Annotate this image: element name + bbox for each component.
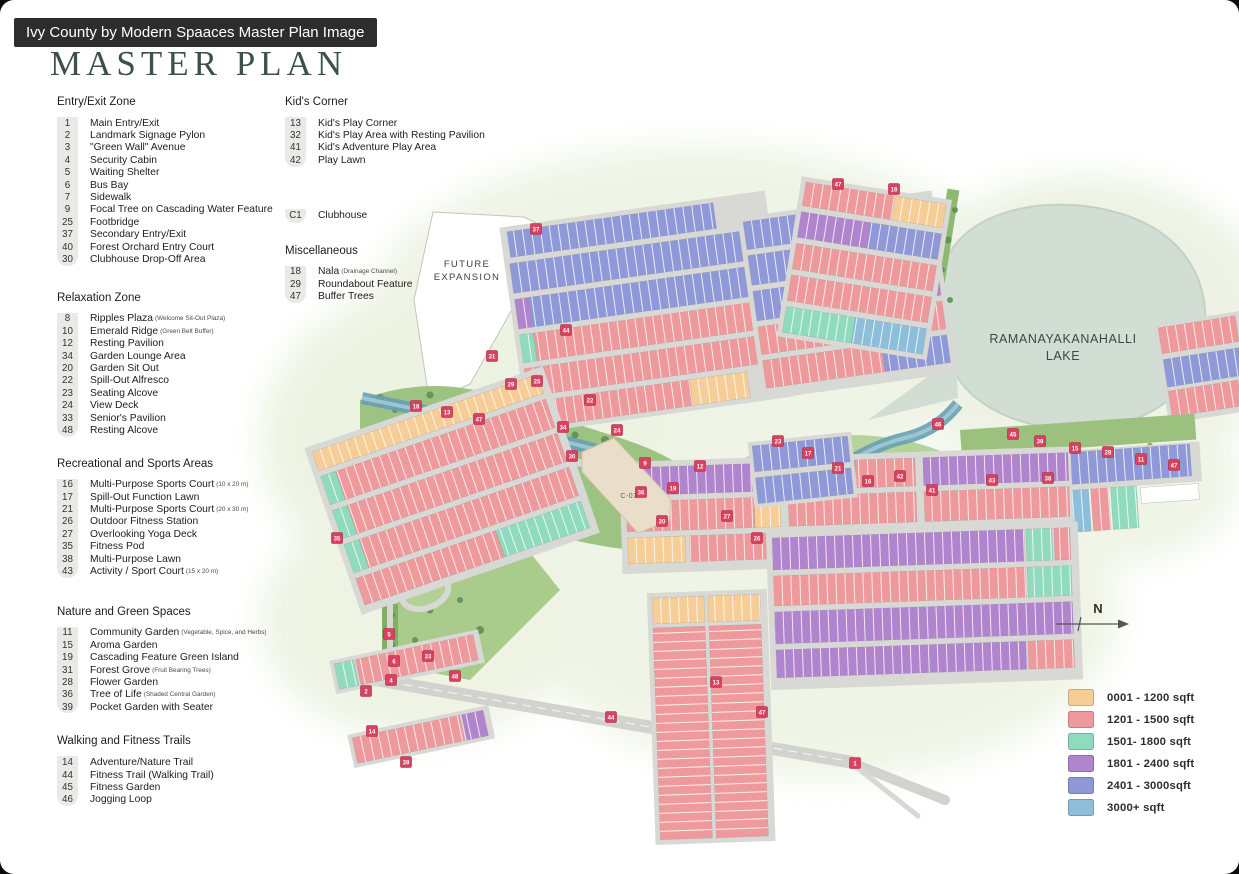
section-walking: Walking and Fitness Trails 14Adventure/N… <box>57 735 292 806</box>
svg-text:24: 24 <box>614 428 621 434</box>
svg-text:27: 27 <box>724 514 731 520</box>
legend-item-number: 8 <box>57 313 78 325</box>
legend-item-label: Overlooking Yoga Deck <box>90 528 197 540</box>
section-sports: Recreational and Sports Areas 16Multi-Pu… <box>57 458 292 578</box>
map-marker: 13 <box>711 677 722 688</box>
svg-text:38: 38 <box>1045 476 1052 482</box>
map-marker: 47 <box>833 179 844 190</box>
legend-item-number: 4 <box>57 154 78 166</box>
north-label: N <box>1093 601 1102 616</box>
legend-item: 23Seating Alcove <box>57 387 292 399</box>
legend-item-number: 29 <box>285 278 306 290</box>
plot-size-legend: 0001 - 1200 sqft 1201 - 1500 sqft 1501- … <box>1068 690 1194 815</box>
svg-text:18: 18 <box>891 187 898 193</box>
map-marker: 44 <box>606 712 617 723</box>
legend-item-label: Kid's Play Area with Resting Pavilion <box>318 129 485 141</box>
legend-list-walking: 14Adventure/Nature Trail44Fitness Trail … <box>57 756 292 806</box>
legend-item-label: Cascading Feature Green Island <box>90 652 239 664</box>
map-marker: 5 <box>384 629 395 640</box>
map-marker: 18 <box>411 401 422 412</box>
map-marker: 4 <box>386 675 397 686</box>
map-marker: 12 <box>695 461 706 472</box>
svg-text:39: 39 <box>403 760 410 766</box>
section-misc: Miscellaneous 18Nala(Drainage Channel)29… <box>285 245 485 303</box>
legend-item-label: Spill-Out Alfresco <box>90 375 169 387</box>
map-marker: 33 <box>423 651 434 662</box>
map-marker: 39 <box>1035 436 1046 447</box>
svg-text:44: 44 <box>563 328 570 334</box>
size-legend-row: 3000+ sqft <box>1068 800 1194 815</box>
legend-item-label: Focal Tree on Cascading Water Feature <box>90 204 273 216</box>
legend-item: 40Forest Orchard Entry Court <box>57 241 292 253</box>
legend-item-label: Forest Orchard Entry Court <box>90 241 214 253</box>
size-legend-label: 1501- 1800 sqft <box>1107 736 1191 748</box>
legend-item: 10Emerald Ridge(Green Belt Buffer) <box>57 325 292 337</box>
legend-item-number: 48 <box>57 424 78 436</box>
size-legend-label: 3000+ sqft <box>1107 802 1165 814</box>
legend-item-label: Landmark Signage Pylon <box>90 129 205 141</box>
legend-item-number: 27 <box>57 528 78 540</box>
svg-text:31: 31 <box>489 354 496 360</box>
legend-item-label: Pocket Garden with Seater <box>90 701 213 713</box>
svg-text:44: 44 <box>608 715 615 721</box>
svg-text:41: 41 <box>929 488 936 494</box>
legend-list-entry-exit: 1Main Entry/Exit2Landmark Signage Pylon3… <box>57 117 292 266</box>
map-marker: 30 <box>567 451 578 462</box>
legend-item-label: Ripples Plaza(Welcome Sit-Out Plaza) <box>90 313 225 325</box>
svg-text:14: 14 <box>369 729 376 735</box>
legend-item: 35Fitness Pod <box>57 541 292 553</box>
legend-item-label: Main Entry/Exit <box>90 117 159 129</box>
legend-item: 4Security Cabin <box>57 154 292 166</box>
map-marker: 1 <box>850 758 861 769</box>
legend-item-number: 30 <box>57 253 78 265</box>
clubhouse-building-label: C-01 <box>620 493 637 500</box>
legend-item-number: 38 <box>57 553 78 565</box>
legend-item: 22Spill-Out Alfresco <box>57 375 292 387</box>
legend-item: 8Ripples Plaza(Welcome Sit-Out Plaza) <box>57 313 292 325</box>
legend-item-number: 9 <box>57 204 78 216</box>
legend-item-number: 14 <box>57 756 78 768</box>
section-title: Miscellaneous <box>285 245 485 257</box>
legend-item: 48Resting Alcove <box>57 424 292 436</box>
legend-item: 38Multi-Purpose Lawn <box>57 553 292 565</box>
map-marker: 18 <box>889 184 900 195</box>
size-legend-label: 1801 - 2400 sqft <box>1107 758 1194 770</box>
svg-text:23: 23 <box>775 439 782 445</box>
legend-item-label: Fitness Trail (Walking Trail) <box>90 769 214 781</box>
legend-list-nature: 11Community Garden(Vegetable, Spice, and… <box>57 627 292 714</box>
legend-item-number: 41 <box>285 142 306 154</box>
map-marker: 35 <box>332 533 343 544</box>
svg-text:17: 17 <box>805 451 812 457</box>
legend-item-number: 24 <box>57 399 78 411</box>
svg-text:20: 20 <box>659 519 666 525</box>
legend-item-number: 42 <box>285 154 306 166</box>
legend-item: 7Sidewalk <box>57 191 292 203</box>
legend-item-label: Outdoor Fitness Station <box>90 516 198 528</box>
legend-item-number: 7 <box>57 191 78 203</box>
map-marker: 13 <box>442 407 453 418</box>
svg-text:25: 25 <box>534 379 541 385</box>
legend-item-label: Forest Grove(Fruit Bearing Trees) <box>90 664 211 676</box>
legend-item: 18Nala(Drainage Channel) <box>285 266 485 278</box>
size-legend-swatch <box>1068 777 1094 794</box>
legend-column-1: Entry/Exit Zone 1Main Entry/Exit2Landmar… <box>57 96 292 806</box>
legend-item-number: 32 <box>285 129 306 141</box>
map-marker: 47 <box>474 414 485 425</box>
map-marker: 38 <box>1043 473 1054 484</box>
map-marker: 31 <box>487 351 498 362</box>
legend-item-number: 17 <box>57 491 78 503</box>
legend-item-number: 6 <box>57 179 78 191</box>
svg-text:43: 43 <box>989 478 996 484</box>
legend-item-label: Nala(Drainage Channel) <box>318 266 397 278</box>
svg-text:12: 12 <box>697 464 704 470</box>
map-marker: 20 <box>657 516 668 527</box>
legend-item: 36Tree of Life(Shaded Central Garden) <box>57 689 292 701</box>
svg-text:37: 37 <box>533 227 540 233</box>
legend-item-number: 34 <box>57 350 78 362</box>
legend-item: 21Multi-Purpose Sports Court(20 x 30 m) <box>57 503 292 515</box>
section-title: Recreational and Sports Areas <box>57 458 292 470</box>
legend-item-label: Emerald Ridge(Green Belt Buffer) <box>90 325 214 337</box>
legend-item-label: Resting Alcove <box>90 424 158 436</box>
legend-item-label: Kid's Adventure Play Area <box>318 142 436 154</box>
legend-item: 25Footbridge <box>57 216 292 228</box>
legend-item: 33Senior's Pavilion <box>57 412 292 424</box>
legend-item-label: Adventure/Nature Trail <box>90 756 193 768</box>
size-legend-row: 1801 - 2400 sqft <box>1068 756 1194 771</box>
map-marker: 26 <box>752 533 763 544</box>
legend-item-number: 37 <box>57 229 78 241</box>
size-legend-row: 1501- 1800 sqft <box>1068 734 1194 749</box>
section-entry-exit: Entry/Exit Zone 1Main Entry/Exit2Landmar… <box>57 96 292 266</box>
svg-text:22: 22 <box>587 398 594 404</box>
map-marker: 47 <box>757 707 768 718</box>
legend-item-label: Activity / Sport Court(15 x 20 m) <box>90 565 218 577</box>
map-marker: 11 <box>1136 454 1147 465</box>
size-legend-label: 1201 - 1500 sqft <box>1107 714 1194 726</box>
svg-text:48: 48 <box>452 674 459 680</box>
legend-item-label: Flower Garden <box>90 676 158 688</box>
legend-item-number: 26 <box>57 516 78 528</box>
legend-item-label: Resting Pavilion <box>90 337 164 349</box>
legend-item-number: 36 <box>57 689 78 701</box>
legend-item-label: Aroma Garden <box>90 639 158 651</box>
legend-item-label: Fitness Garden <box>90 781 160 793</box>
map-marker: 17 <box>803 448 814 459</box>
legend-item: 17Spill-Out Function Lawn <box>57 491 292 503</box>
legend-item-label: Bus Bay <box>90 179 128 191</box>
master-plan-page: RAMANAYAKANAHALLI LAKE FUTURE EXPANSION <box>0 0 1239 874</box>
map-marker: 47 <box>1169 460 1180 471</box>
size-legend-swatch <box>1068 799 1094 816</box>
legend-item-number: 3 <box>57 142 78 154</box>
legend-item: 29Roundabout Feature <box>285 278 485 290</box>
legend-item-number: 10 <box>57 325 78 337</box>
page-title: MASTER PLAN <box>50 44 347 84</box>
legend-item-number: 20 <box>57 362 78 374</box>
legend-item: 9Focal Tree on Cascading Water Feature <box>57 204 292 216</box>
legend-item: 26Outdoor Fitness Station <box>57 516 292 528</box>
legend-item-number: 19 <box>57 652 78 664</box>
legend-item-number: C1 <box>285 209 306 223</box>
legend-item-number: 15 <box>57 639 78 651</box>
legend-item-label: Spill-Out Function Lawn <box>90 491 199 503</box>
section-kids: Kid's Corner 13Kid's Play Corner32Kid's … <box>285 96 485 167</box>
legend-item-label: Tree of Life(Shaded Central Garden) <box>90 689 215 701</box>
map-marker: 22 <box>585 395 596 406</box>
legend-item-number: 44 <box>57 769 78 781</box>
size-legend-row: 1201 - 1500 sqft <box>1068 712 1194 727</box>
legend-item: 27Overlooking Yoga Deck <box>57 528 292 540</box>
legend-item-number: 43 <box>57 565 78 577</box>
legend-item: 3"Green Wall" Avenue <box>57 142 292 154</box>
map-marker: 21 <box>833 463 844 474</box>
legend-item-label: Garden Lounge Area <box>90 350 186 362</box>
legend-column-2: Kid's Corner 13Kid's Play Corner32Kid's … <box>285 96 485 303</box>
map-marker: 39 <box>401 757 412 768</box>
legend-list-kids: 13Kid's Play Corner32Kid's Play Area wit… <box>285 117 485 167</box>
legend-item: 47Buffer Trees <box>285 290 485 302</box>
svg-text:13: 13 <box>713 680 720 686</box>
legend-item: 28Flower Garden <box>57 676 292 688</box>
svg-text:35: 35 <box>334 536 341 542</box>
legend-item: 32Kid's Play Area with Resting Pavilion <box>285 129 485 141</box>
map-marker: 42 <box>895 471 906 482</box>
size-legend-label: 2401 - 3000sqft <box>1107 780 1191 792</box>
legend-item-label: Secondary Entry/Exit <box>90 229 186 241</box>
legend-item-label: Multi-Purpose Sports Court(20 x 30 m) <box>90 503 249 515</box>
legend-item-label: Clubhouse <box>318 209 367 223</box>
legend-item: 5Waiting Shelter <box>57 167 292 179</box>
svg-text:26: 26 <box>754 536 761 542</box>
map-marker: 44 <box>561 325 572 336</box>
legend-item-label: Community Garden(Vegetable, Spice, and H… <box>90 627 267 639</box>
size-legend-row: 2401 - 3000sqft <box>1068 778 1194 793</box>
legend-item: 2Landmark Signage Pylon <box>57 129 292 141</box>
legend-item-label: Garden Sit Out <box>90 362 159 374</box>
legend-item-label: Play Lawn <box>318 154 366 166</box>
legend-item: 45Fitness Garden <box>57 781 292 793</box>
section-clubhouse: C1 Clubhouse <box>285 209 485 223</box>
legend-item-number: 13 <box>285 117 306 129</box>
legend-item-label: "Green Wall" Avenue <box>90 142 185 154</box>
section-title: Kid's Corner <box>285 96 485 108</box>
map-marker: 15 <box>1070 443 1081 454</box>
lake-label-line1: RAMANAYAKANAHALLI <box>989 332 1136 346</box>
section-title: Relaxation Zone <box>57 292 292 304</box>
legend-item: C1 Clubhouse <box>285 209 485 223</box>
legend-item-number: 18 <box>285 266 306 278</box>
legend-item: 14Adventure/Nature Trail <box>57 756 292 768</box>
legend-item-label: Senior's Pavilion <box>90 412 166 424</box>
legend-item-number: 45 <box>57 781 78 793</box>
section-title: Walking and Fitness Trails <box>57 735 292 747</box>
legend-list-misc: 18Nala(Drainage Channel)29Roundabout Fea… <box>285 266 485 303</box>
section-relaxation: Relaxation Zone 8Ripples Plaza(Welcome S… <box>57 292 292 437</box>
legend-item-label: Buffer Trees <box>318 290 374 302</box>
svg-text:34: 34 <box>560 425 567 431</box>
svg-text:30: 30 <box>569 454 576 460</box>
svg-text:18: 18 <box>413 404 420 410</box>
map-marker: 34 <box>558 422 569 433</box>
svg-text:28: 28 <box>1105 450 1112 456</box>
legend-item-number: 28 <box>57 676 78 688</box>
svg-text:19: 19 <box>670 486 677 492</box>
legend-item: 42Play Lawn <box>285 154 485 166</box>
legend-item: 24View Deck <box>57 399 292 411</box>
legend-item-label: Footbridge <box>90 216 139 228</box>
legend-item-number: 2 <box>57 129 78 141</box>
legend-item-number: 40 <box>57 241 78 253</box>
size-legend-swatch <box>1068 711 1094 728</box>
svg-text:47: 47 <box>835 182 842 188</box>
legend-item-label: Sidewalk <box>90 191 131 203</box>
map-marker: 2 <box>361 686 372 697</box>
size-legend-swatch <box>1068 733 1094 750</box>
map-marker: 9 <box>640 458 651 469</box>
legend-item-number: 33 <box>57 412 78 424</box>
legend-item: 19Cascading Feature Green Island <box>57 652 292 664</box>
map-marker: 37 <box>531 224 542 235</box>
map-marker: 28 <box>1103 447 1114 458</box>
legend-item: 43Activity / Sport Court(15 x 20 m) <box>57 565 292 577</box>
legend-item-label: Multi-Purpose Lawn <box>90 553 181 565</box>
map-marker: 36 <box>636 487 647 498</box>
legend-item: 12Resting Pavilion <box>57 337 292 349</box>
legend-item-number: 47 <box>285 290 306 302</box>
legend-item-label: Waiting Shelter <box>90 167 159 179</box>
legend-item-label: Clubhouse Drop-Off Area <box>90 253 205 265</box>
legend-item-number: 31 <box>57 664 78 676</box>
legend-item-label: Jogging Loop <box>90 794 152 806</box>
legend-item: 41Kid's Adventure Play Area <box>285 142 485 154</box>
legend-item-number: 23 <box>57 387 78 399</box>
svg-text:47: 47 <box>759 710 766 716</box>
section-title: Entry/Exit Zone <box>57 96 292 108</box>
map-marker: 45 <box>1008 429 1019 440</box>
size-legend-label: 0001 - 1200 sqft <box>1107 692 1194 704</box>
legend-item-number: 25 <box>57 216 78 228</box>
legend-item: 20Garden Sit Out <box>57 362 292 374</box>
legend-item-number: 39 <box>57 701 78 713</box>
legend-item-number: 35 <box>57 541 78 553</box>
legend-item-number: 46 <box>57 794 78 806</box>
svg-text:21: 21 <box>835 466 842 472</box>
map-marker: 41 <box>927 485 938 496</box>
legend-list-sports: 16Multi-Purpose Sports Court(10 x 20 m)1… <box>57 479 292 578</box>
legend-item: 46Jogging Loop <box>57 794 292 806</box>
lake-label-line2: LAKE <box>1046 349 1080 363</box>
legend-item-label: Seating Alcove <box>90 387 158 399</box>
legend-item-number: 16 <box>57 479 78 491</box>
legend-item-label: View Deck <box>90 399 138 411</box>
map-marker: 24 <box>612 425 623 436</box>
legend-item: 11Community Garden(Vegetable, Spice, and… <box>57 627 292 639</box>
size-legend-swatch <box>1068 755 1094 772</box>
map-marker: 23 <box>773 436 784 447</box>
legend-item-number: 1 <box>57 117 78 129</box>
legend-item-label: Kid's Play Corner <box>318 117 397 129</box>
map-marker: 19 <box>668 483 679 494</box>
legend-item: 39Pocket Garden with Seater <box>57 701 292 713</box>
legend-item-label: Fitness Pod <box>90 541 144 553</box>
size-legend-swatch <box>1068 689 1094 706</box>
legend-list-relaxation: 8Ripples Plaza(Welcome Sit-Out Plaza)10E… <box>57 313 292 437</box>
legend-item: 30Clubhouse Drop-Off Area <box>57 253 292 265</box>
legend-item: 37Secondary Entry/Exit <box>57 229 292 241</box>
svg-text:11: 11 <box>1138 457 1145 463</box>
svg-text:47: 47 <box>476 417 483 423</box>
legend-item-number: 5 <box>57 167 78 179</box>
map-marker: 27 <box>722 511 733 522</box>
map-marker: 6 <box>389 656 400 667</box>
legend-item: 1Main Entry/Exit <box>57 117 292 129</box>
map-marker: 46 <box>933 419 944 430</box>
legend-item: 6Bus Bay <box>57 179 292 191</box>
legend-item: 15Aroma Garden <box>57 639 292 651</box>
legend-item-number: 11 <box>57 627 78 639</box>
legend-item-number: 12 <box>57 337 78 349</box>
svg-text:39: 39 <box>1037 439 1044 445</box>
section-title: Nature and Green Spaces <box>57 606 292 618</box>
map-marker: 25 <box>532 376 543 387</box>
svg-text:36: 36 <box>638 490 645 496</box>
size-legend-row: 0001 - 1200 sqft <box>1068 690 1194 705</box>
legend-item-label: Multi-Purpose Sports Court(10 x 20 m) <box>90 479 249 491</box>
legend-item: 44Fitness Trail (Walking Trail) <box>57 769 292 781</box>
legend-item: 31Forest Grove(Fruit Bearing Trees) <box>57 664 292 676</box>
svg-text:45: 45 <box>1010 432 1017 438</box>
map-marker: 16 <box>863 476 874 487</box>
svg-text:47: 47 <box>1171 463 1178 469</box>
svg-text:33: 33 <box>425 654 432 660</box>
legend-item-number: 21 <box>57 503 78 515</box>
svg-text:29: 29 <box>508 382 515 388</box>
svg-text:46: 46 <box>935 422 942 428</box>
legend-item-label: Security Cabin <box>90 154 157 166</box>
legend-item-number: 22 <box>57 375 78 387</box>
legend-item: 34Garden Lounge Area <box>57 350 292 362</box>
svg-text:42: 42 <box>897 474 904 480</box>
legend-item: 16Multi-Purpose Sports Court(10 x 20 m) <box>57 479 292 491</box>
section-nature: Nature and Green Spaces 11Community Gard… <box>57 606 292 714</box>
legend-item-label: Roundabout Feature <box>318 278 412 290</box>
map-marker: 43 <box>987 475 998 486</box>
legend-item: 13Kid's Play Corner <box>285 117 485 129</box>
svg-text:15: 15 <box>1072 446 1079 452</box>
image-caption-banner: Ivy County by Modern Spaaces Master Plan… <box>14 18 377 47</box>
svg-text:13: 13 <box>444 410 451 416</box>
map-marker: 29 <box>506 379 517 390</box>
map-marker: 14 <box>367 726 378 737</box>
svg-text:16: 16 <box>865 479 872 485</box>
map-marker: 48 <box>450 671 461 682</box>
